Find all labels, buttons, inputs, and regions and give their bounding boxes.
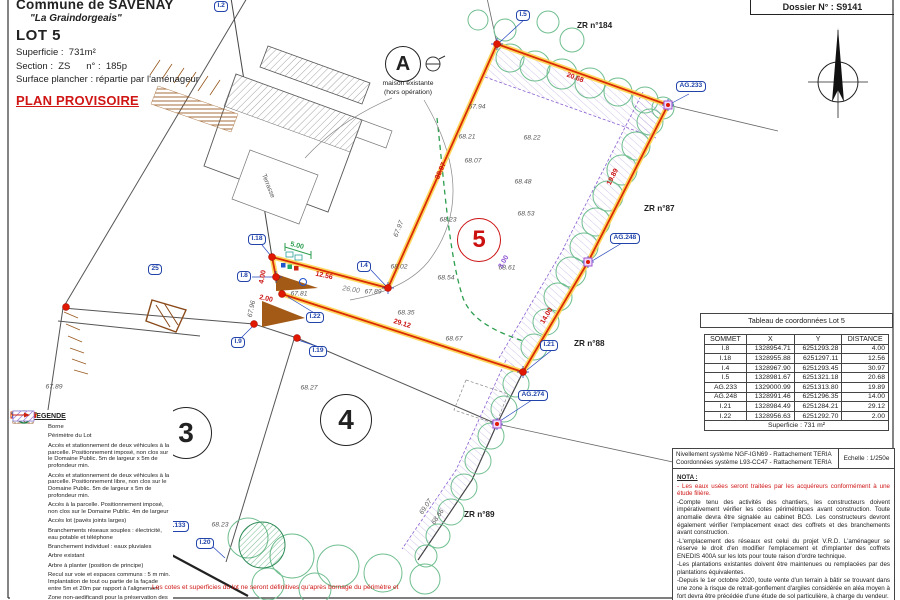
table-cell: 1328984.49	[746, 402, 794, 412]
coordonnees: Coordonnées système L93-CC47 - Rattachem…	[676, 459, 835, 467]
table-cell: 19.89	[842, 382, 889, 392]
title-block: Commune de SAVENAY "La Graindorgeais" LO…	[16, 0, 199, 109]
nota-line: -Depuis le 1er octobre 2020, toute vente…	[677, 577, 890, 600]
table-cell: 4.00	[842, 344, 889, 354]
legend-item-label: Branchements réseaux souples : électrici…	[48, 528, 173, 542]
col-y: Y	[794, 335, 842, 345]
table-row: AG.2331329000.996251313.8019.89	[705, 382, 889, 392]
table-cell: 6251292.70	[794, 411, 842, 421]
pole-symbol	[426, 56, 445, 71]
legend-item-label: Accès lot (pavés joints larges)	[48, 518, 173, 525]
nota-line: - Les eaux usées seront traitées par les…	[677, 483, 890, 498]
scale-label: Echelle : 1/250e	[839, 449, 894, 468]
legend-item-perimetre: Périmètre du Lot	[18, 433, 173, 440]
zone-non-aedificandi-bands	[402, 44, 668, 560]
legend-item-label: Accès à la parcelle. Positionnement impo…	[48, 502, 173, 516]
table-row: AG.2481328991.466251296.3514.00	[705, 392, 889, 402]
datum-systems: Nivellement système NGF-IGN69 - Rattache…	[673, 449, 839, 468]
table-cell: 2.00	[842, 411, 889, 421]
north-arrow	[808, 28, 868, 118]
table-cell: 14.00	[842, 392, 889, 402]
legend-item-label: Périmètre du Lot	[48, 433, 173, 440]
table-cell: 20.68	[842, 373, 889, 383]
legend-title: LEGENDE	[32, 413, 173, 421]
table-cell: AG.248	[705, 392, 747, 402]
lot-title: LOT 5	[16, 28, 199, 45]
table-cell: 1328954.71	[746, 344, 794, 354]
table-row: I.81328954.716251293.284.00	[705, 344, 889, 354]
nota-line: -Compte tenu des activités des chantiers…	[677, 499, 890, 537]
table-cell: 6251293.45	[794, 363, 842, 373]
nota-line: -Les plantations existantes doivent être…	[677, 561, 890, 576]
table-cell: 6251293.28	[794, 344, 842, 354]
legend-item-zone-non-aedificandi: Zone non-aedificandi pour la préservatio…	[18, 595, 173, 600]
table-cell: 1328981.67	[746, 373, 794, 383]
table-cell: 30.97	[842, 363, 889, 373]
legend-item-arbre-existant: Arbre existant	[18, 553, 173, 560]
table-row: I.51328981.676251321.1820.68	[705, 373, 889, 383]
table-cell: 6251296.35	[794, 392, 842, 402]
legend-item-acces-libre: Accès et stationnement de deux véhicules…	[18, 473, 173, 500]
legend-item-label: Branchement individuel : eaux pluviales	[48, 544, 173, 551]
table-cell: 12.56	[842, 354, 889, 364]
table-cell: I.8	[705, 344, 747, 354]
coordinates-table: SOMMETXYDISTANCE I.81328954.716251293.28…	[704, 334, 889, 431]
table-row: I.41328967.906251293.4530.97	[705, 363, 889, 373]
superficie: Superficie : 731m²	[16, 48, 199, 59]
lieu-dit: "La Graindorgeais"	[30, 13, 199, 24]
table-cell: I.4	[705, 363, 747, 373]
col-sommet: SOMMET	[705, 335, 747, 345]
table-cell: 1328956.63	[746, 411, 794, 421]
house-label-line2: (hors opération)	[384, 89, 432, 96]
nota-box: Nivellement système NGF-IGN69 - Rattache…	[672, 448, 895, 600]
table-footer: Superficie : 731 m²	[705, 421, 889, 431]
legend-item-label: Accès et stationnement de deux véhicules…	[48, 473, 173, 500]
table-cell: 6251297.11	[794, 354, 842, 364]
table-cell: 6251321.18	[794, 373, 842, 383]
legend-item-label: Borne	[48, 424, 173, 431]
legend-item-acces-impose: Accès et stationnement de deux véhicules…	[18, 443, 173, 470]
coordinates-table-title: Tableau de coordonnées Lot 5	[700, 313, 893, 328]
legend-item-recul: Recul sur voie et espaces communs : 5 m …	[18, 572, 173, 592]
large-existing-tree	[239, 522, 285, 568]
table-cell: 6251284.21	[794, 402, 842, 412]
table-cell: I.5	[705, 373, 747, 383]
table-row: I.181328955.886251297.1112.56	[705, 354, 889, 364]
table-header-row: SOMMETXYDISTANCE	[705, 335, 889, 345]
house-label-line1: maison existante	[382, 80, 433, 87]
plan-provisoire-stamp: PLAN PROVISOIRE	[16, 94, 199, 109]
col-distance: DISTANCE	[842, 335, 889, 345]
legend-item-label: Arbre à planter (position de principe)	[48, 563, 173, 570]
coordinates-block: Tableau de coordonnées Lot 5 SOMMETXYDIS…	[700, 313, 893, 431]
legend-item-label: Zone non-aedificandi pour la préservatio…	[48, 595, 173, 600]
legend-item-paves: Accès lot (pavés joints larges)	[18, 518, 173, 525]
table-cell: 1329000.99	[746, 382, 794, 392]
table-cell: 1328967.90	[746, 363, 794, 373]
table-cell: I.21	[705, 402, 747, 412]
nivellement: Nivellement système NGF-IGN69 - Rattache…	[676, 451, 835, 459]
table-row: I.221328956.636251292.702.00	[705, 411, 889, 421]
commune-title: Commune de SAVENAY	[16, 0, 199, 12]
nota-line: -L'emplacement des réseaux est celui du …	[677, 538, 890, 561]
legend-item-label: Accès et stationnement de deux véhicules…	[48, 443, 173, 470]
survey-sheet: I.225I.18I.8I.22I.4I.9I.19I.5AG.233AG.24…	[0, 0, 900, 600]
legend: LEGENDE BornePérimètre du LotAccès et st…	[10, 410, 173, 600]
table-cell: 29.12	[842, 402, 889, 412]
footer-note: Les cotes et superficies du lot ne seron…	[152, 584, 398, 591]
nota-text: - Les eaux usées seront traitées par les…	[677, 483, 890, 600]
table-cell: I.18	[705, 354, 747, 364]
table-cell: I.22	[705, 411, 747, 421]
section: Section : ZS n° : 185p	[16, 62, 199, 73]
table-cell: 6251313.80	[794, 382, 842, 392]
surface-plancher: Surface plancher : répartie par l'aménag…	[16, 75, 199, 86]
legend-item-borne: Borne	[18, 424, 173, 431]
col-x: X	[746, 335, 794, 345]
legend-item-pluvial: Branchement individuel : eaux pluviales	[18, 544, 173, 551]
table-cell: AG.233	[705, 382, 747, 392]
table-cell: 1328991.46	[746, 392, 794, 402]
table-row: I.211328984.496251284.2129.12	[705, 402, 889, 412]
legend-item-arbre-planter: Arbre à planter (position de principe)	[18, 563, 173, 570]
dossier-number: Dossier N° : S9141	[750, 0, 894, 15]
legend-item-acces-fleche: Accès à la parcelle. Positionnement impo…	[18, 502, 173, 516]
datum-row: Nivellement système NGF-IGN69 - Rattache…	[673, 449, 894, 469]
table-cell: 1328955.88	[746, 354, 794, 364]
legend-item-reseaux: Branchements réseaux souples : électrici…	[18, 528, 173, 542]
access-markers	[146, 274, 318, 332]
legend-item-label: Arbre existant	[48, 553, 173, 560]
nota-title: NOTA :	[677, 474, 890, 482]
